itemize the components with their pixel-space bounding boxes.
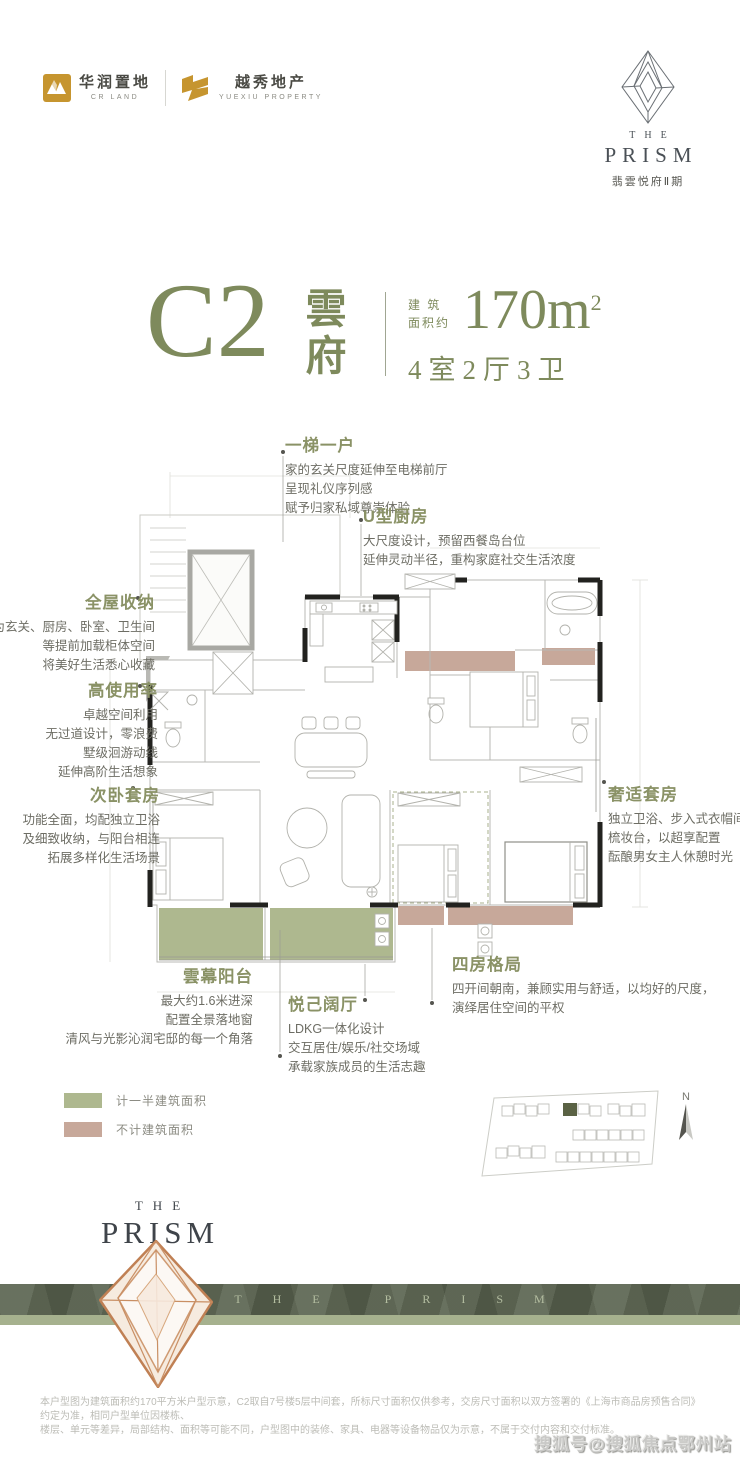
annotation-four-rooms: 四房格局 四开间朝南，兼顾实用与舒适，以均好的尺度， 演绎居住空间的平权 xyxy=(452,956,715,1018)
compass-needle-dark xyxy=(679,1104,686,1140)
compass-label: N xyxy=(682,1091,690,1103)
dining-table xyxy=(295,733,367,767)
area-sup: 2 xyxy=(591,290,602,315)
developer-logos: 华润置地 CR LAND 越秀地产 YUEXIU PROPERTY xyxy=(42,70,323,106)
cr-land-name-en: CR LAND xyxy=(91,94,139,102)
brand-top-prism: PRISM xyxy=(582,143,714,168)
brand-bottom-the: THE xyxy=(60,1198,255,1214)
annotation-master-suite: 奢适套房 独立卫浴、步入式衣帽间 梳妆台，以超享配置 酝酿男女主人休憩时光 xyxy=(608,786,740,867)
annotation-storage: 全屋收纳 为玄关、厨房、卧室、卫生间 等提前加载柜体空间 将美好生活悉心收藏 xyxy=(0,594,155,675)
legend-label-excluded-area: 不计建筑面积 xyxy=(116,1121,194,1138)
area-legend: 计一半建筑面积 不计建筑面积 xyxy=(64,1092,207,1150)
area-value: 170m2 xyxy=(463,282,602,338)
prism-diamond-icon xyxy=(621,50,675,124)
bathtub xyxy=(547,592,597,614)
prism-brand-top: THE PRISM 翡雲悦府Ⅱ期 xyxy=(582,50,714,189)
cr-land-logo: 华润置地 CR LAND xyxy=(42,73,151,103)
compass: N xyxy=(679,1091,693,1140)
unit-name-char1: 雲 xyxy=(302,286,350,333)
disclaimer-line1: 本户型图为建筑面积约170平方米户型示意，C2取自7号楼5层中间套，所标尺寸面积… xyxy=(40,1396,708,1424)
yuexiu-logo: 越秀地产 YUEXIU PROPERTY xyxy=(180,74,323,101)
logo-divider xyxy=(165,70,166,106)
annotation-entry: 一梯一户 家的玄关尺度延伸至电梯前厅 呈现礼仪序列感 赋予归家私域尊崇体验 xyxy=(285,437,448,518)
crystal-prism-icon xyxy=(99,1240,213,1388)
watermark: 搜狐号@搜狐焦点鄂州站 xyxy=(534,1430,732,1455)
legend-row-excluded-area: 不计建筑面积 xyxy=(64,1121,207,1138)
annotation-balcony: 雲幕阳台 最大约1.6米进深 配置全景落地窗 清风与光影沁润宅邸的每一个角落 xyxy=(65,968,253,1049)
cr-land-name-cn: 华润置地 xyxy=(79,74,151,91)
annotation-secondary-suite: 次卧套房 功能全面，均配独立卫浴 及细致收纳，与阳台相连 拓展多样化生活场景 xyxy=(22,787,160,868)
annotation-efficiency: 高使用率 卓越空间利用 无过道设计，零浪费 墅级洄游动线 延伸高阶生活想象 xyxy=(45,682,158,782)
yuexiu-name-cn: 越秀地产 xyxy=(235,74,307,91)
room-layout: 4室2厅3卫 xyxy=(408,348,572,387)
brand-top-the: THE xyxy=(582,130,714,141)
area-label: 建 筑 面积约 xyxy=(408,296,450,332)
compass-needle-light xyxy=(686,1104,693,1140)
unit-code: C2 xyxy=(146,268,270,374)
unit-name-char2: 府 xyxy=(302,333,350,380)
cr-land-icon xyxy=(42,73,72,103)
annotation-living: 悦己阔厅 LDKG一体化设计 交互居住/娱乐/社交场域 承载家族成员的生活志趣 xyxy=(288,996,426,1077)
site-plan: N xyxy=(478,1082,708,1207)
legend-label-half-area: 计一半建筑面积 xyxy=(116,1092,207,1109)
sofa xyxy=(342,795,380,887)
poster-page: 华润置地 CR LAND 越秀地产 YUEXIU PROPERTY xyxy=(0,0,740,1462)
legend-row-half-area: 计一半建筑面积 xyxy=(64,1092,207,1109)
highlighted-building xyxy=(563,1103,577,1116)
legend-swatch-pink xyxy=(64,1122,102,1137)
unit-name: 雲 府 xyxy=(302,286,350,380)
yuexiu-name-en: YUEXIU PROPERTY xyxy=(219,94,323,102)
annotation-kitchen: U型厨房 大尺度设计，预留西餐岛台位 延伸灵动半径，重构家庭社交生活浓度 xyxy=(363,508,576,570)
half-area-balcony xyxy=(159,908,393,960)
title-divider xyxy=(385,292,386,376)
legend-swatch-green xyxy=(64,1093,102,1108)
yuexiu-icon xyxy=(180,75,212,101)
brand-top-subtitle: 翡雲悦府Ⅱ期 xyxy=(582,173,714,189)
kitchen-island xyxy=(325,667,373,682)
